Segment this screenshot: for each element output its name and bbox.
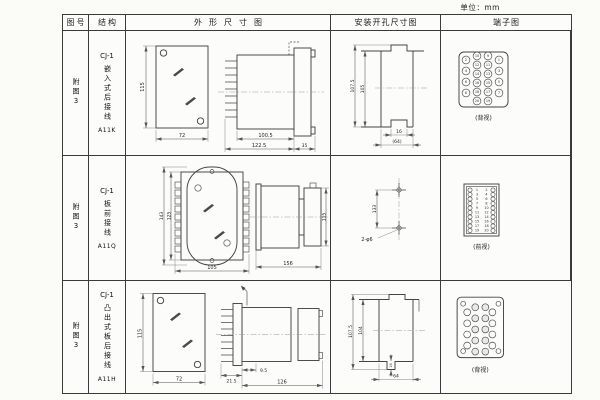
terminal-number: 7 — [476, 202, 478, 206]
row3-figure-label: 附图3 — [72, 322, 79, 352]
terminal-number: 7 — [498, 91, 500, 95]
mounting-drawing-a11q: 133 2-φ6 — [331, 156, 440, 280]
dim-hole-spacing: 133 — [372, 205, 378, 214]
row2-mounting-cell: 133 2-φ6 — [331, 156, 441, 281]
side-dimensions: 100.5 122.5 35 — [225, 119, 315, 152]
dim-front-width: 105 — [207, 265, 217, 271]
dim-cutout-outer-height: 107.5 — [348, 325, 354, 338]
header-col-figure: 图号 — [63, 15, 89, 31]
terminal-number: 12 — [475, 63, 479, 67]
terminal-number: 14 — [475, 72, 479, 76]
terminal-number: 1 — [498, 58, 500, 62]
view-label: (前视) — [473, 243, 490, 251]
terminal-number: 4 — [465, 69, 467, 73]
dim-front-width: 72 — [176, 377, 182, 383]
dim-notch-width: 16 — [396, 129, 402, 135]
unit-label: 单位：mm — [436, 2, 500, 13]
dim-pin-length: 21.5 — [226, 379, 236, 385]
header-col-outline: 外形尺寸图 — [126, 15, 331, 31]
terminal-number: 2 — [465, 58, 467, 62]
terminal-number: 2 — [485, 188, 487, 192]
dim-inner-height: 125 — [167, 212, 173, 221]
mounting-dimensions: 107.5 105 16 (64) — [350, 45, 421, 148]
seal-marks — [170, 313, 193, 349]
row2-structure-name: 板前接线 — [104, 200, 111, 238]
view-label: (背视) — [475, 114, 492, 122]
hole-spec-note: 2-φ6 — [361, 237, 372, 243]
row2-model: CJ-1 — [100, 187, 114, 195]
terminal-number: 6 — [465, 80, 467, 84]
row3-model: CJ-1 — [100, 291, 114, 299]
terminal-number: 16 — [475, 81, 479, 85]
side-view — [221, 286, 323, 366]
cutout-profile — [361, 45, 424, 127]
cutout-profile — [359, 295, 419, 370]
dim-cutout-width: (64) — [392, 139, 401, 145]
row3-figure-cell: 附图3 — [63, 281, 89, 393]
row3-type-code: A11H — [98, 376, 116, 383]
dim-cutout-inner-height: 105 — [360, 85, 366, 94]
dim-bezel-depth: 35 — [302, 143, 308, 149]
spec-table: 图号 结构 外形尺寸图 安装开孔尺寸图 端子图 附图3 CJ-1 嵌入式后接线 … — [62, 14, 572, 394]
outline-drawing-a11h: 115 72 21.5 — [126, 281, 330, 393]
terminal-diagram-a11k: 2 4 6 8 10 12 14 16 18 20 9 11 13 15 17 … — [441, 31, 570, 155]
terminal-number: 9 — [476, 206, 478, 210]
document-page: 单位：mm 图号 结构 外形尺寸图 安装开孔尺寸图 端子图 附图3 CJ-1 嵌… — [0, 0, 600, 400]
terminal-number: 5 — [498, 80, 500, 84]
terminal-number: 10 — [484, 206, 488, 210]
row3-structure-cell: CJ-1 凸出式板后接线 A11H — [89, 281, 126, 393]
row2-outline-cell: 143 125 105 156 — [126, 156, 331, 281]
view-label: (背视) — [472, 366, 489, 374]
dim-cutout-width: 64 — [393, 374, 399, 380]
dim-body-length: 100.5 — [258, 133, 272, 139]
row2-figure-label: 附图3 — [72, 203, 79, 233]
mounting-dimensions: 107.5 104 16 64 — [348, 295, 421, 382]
header-col-mounting: 安装开孔尺寸图 — [331, 15, 441, 31]
terminal-number: 9 — [487, 54, 489, 58]
row1-structure-cell: CJ-1 嵌入式后接线 A11K — [89, 31, 126, 156]
dim-total-length: 122.5 — [252, 143, 266, 149]
row3-mounting-cell: 107.5 104 16 64 — [331, 281, 441, 393]
row1-structure-name: 嵌入式后接线 — [104, 65, 111, 122]
terminal-number: 13 — [486, 72, 490, 76]
terminal-number: 11 — [486, 63, 490, 67]
front-view — [181, 167, 243, 265]
row1-model: CJ-1 — [100, 52, 114, 60]
row1-figure-cell: 附图3 — [63, 31, 89, 156]
front-view — [153, 294, 205, 372]
terminal-number: 16 — [484, 220, 488, 224]
terminal-pins — [464, 304, 496, 355]
row2-terminal-cell: 1 3 5 7 9 11 13 15 17 19 2 4 6 8 10 12 1 — [441, 156, 571, 281]
terminal-number: 10 — [475, 54, 479, 58]
terminal-numbers: 1 3 5 7 9 11 13 15 17 19 2 4 6 8 10 12 1 — [475, 188, 489, 233]
dim-body-length: 126 — [277, 380, 287, 386]
terminal-number: 8 — [485, 202, 487, 206]
terminal-number: 19 — [475, 229, 479, 233]
mounting-drawing-a11k: 107.5 105 16 (64) — [331, 31, 440, 155]
dim-socket-height: 115 — [322, 213, 328, 222]
terminal-number: 3 — [476, 193, 478, 197]
terminal-number: 13 — [475, 215, 479, 219]
terminal-number: 19 — [486, 99, 490, 103]
dim-front-width: 72 — [179, 133, 185, 139]
side-dimensions: 156 115 — [256, 188, 329, 270]
terminal-number: 11 — [475, 211, 479, 215]
header-col-terminal: 端子图 — [441, 15, 571, 31]
outline-drawing-a11q: 143 125 105 156 — [126, 156, 330, 280]
front-view — [156, 46, 208, 128]
terminal-numbers: 2 4 6 8 10 12 14 16 18 20 9 11 13 15 17 … — [465, 54, 500, 103]
row3-outline-cell: 115 72 21.5 — [126, 281, 331, 393]
dim-cutout-inner-height: 104 — [358, 326, 364, 335]
outline-drawing-a11k: 115 72 100.5 122.5 — [126, 31, 330, 155]
dim-flange-offset: 9.5 — [260, 368, 267, 374]
dim-front-height: 115 — [140, 82, 146, 92]
terminal-number: 14 — [484, 215, 488, 219]
terminal-number: 17 — [475, 224, 479, 228]
terminal-diagram-a11q: 1 3 5 7 9 11 13 15 17 19 2 4 6 8 10 12 1 — [441, 156, 570, 280]
terminal-number: 18 — [475, 90, 479, 94]
header-col-structure: 结构 — [89, 15, 126, 31]
terminal-pins — [462, 52, 503, 105]
row2-structure-cell: CJ-1 板前接线 A11Q — [89, 156, 126, 281]
dim-cutout-outer-height: 107.5 — [350, 79, 356, 92]
terminal-number: 4 — [485, 193, 487, 197]
mounting-drawing-a11h: 107.5 104 16 64 — [331, 281, 440, 393]
row1-type-code: A11K — [98, 127, 116, 134]
terminal-diagram-a11h: (背视) — [441, 281, 571, 393]
terminal-number: 17 — [486, 90, 490, 94]
row3-terminal-cell: (背视) — [441, 281, 571, 393]
terminal-number: 1 — [476, 188, 478, 192]
terminal-number: 8 — [465, 91, 467, 95]
mounting-dimensions: 133 2-φ6 — [361, 190, 397, 243]
terminal-number: 12 — [484, 211, 488, 215]
dim-front-height: 115 — [138, 329, 144, 339]
side-dimensions: 21.5 9.5 126 — [221, 361, 323, 389]
terminal-number: 3 — [498, 69, 500, 73]
row3-structure-name: 凸出式板后接线 — [104, 304, 111, 371]
side-view — [225, 42, 315, 136]
terminal-pins — [468, 188, 495, 233]
row1-mounting-cell: 107.5 105 16 (64) — [331, 31, 441, 156]
seal-marks — [203, 204, 225, 240]
row2-figure-cell: 附图3 — [63, 156, 89, 281]
dim-depth: 156 — [283, 261, 293, 267]
terminal-number: 15 — [475, 220, 479, 224]
side-view — [256, 183, 321, 250]
dim-notch-depth: 16 — [389, 363, 393, 367]
terminal-number: 15 — [486, 81, 490, 85]
seal-marks — [173, 68, 196, 106]
row1-outline-cell: 115 72 100.5 122.5 — [126, 31, 331, 156]
terminal-number: 6 — [485, 197, 487, 201]
terminal-number: 5 — [476, 197, 478, 201]
row2-type-code: A11Q — [98, 243, 116, 250]
terminal-number: 20 — [475, 99, 479, 103]
terminal-strips — [175, 170, 249, 263]
row1-figure-label: 附图3 — [72, 78, 79, 108]
terminal-number: 18 — [484, 224, 488, 228]
dim-outer-height: 143 — [159, 212, 165, 221]
terminal-number: 20 — [484, 229, 488, 233]
row1-terminal-cell: 2 4 6 8 10 12 14 16 18 20 9 11 13 15 17 … — [441, 31, 571, 156]
